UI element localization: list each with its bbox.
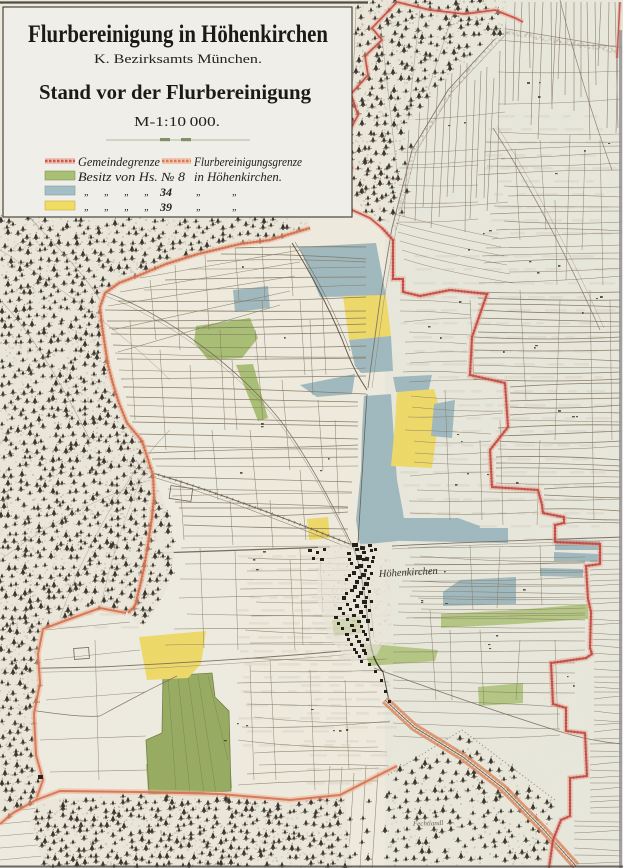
- svg-text:Gemeindegrenze: Gemeindegrenze: [78, 155, 160, 169]
- svg-text:34: 34: [159, 185, 172, 199]
- svg-text:M-1:10 000.: M-1:10 000.: [134, 115, 220, 130]
- svg-text:„ „ „ „: „ „ „ „: [84, 202, 156, 213]
- svg-text:„ „: „ „: [196, 202, 252, 213]
- svg-text:39: 39: [159, 200, 172, 214]
- svg-text:„ „: „ „: [196, 187, 252, 198]
- svg-text:K. Bezirksamts München.: K. Bezirksamts München.: [94, 51, 262, 66]
- svg-text:Besitz von Hs. № 8: Besitz von Hs. № 8: [78, 170, 186, 184]
- svg-text:„ „ „ „: „ „ „ „: [84, 187, 156, 198]
- svg-text:Stand vor der Flurbereinigung: Stand vor der Flurbereinigung: [39, 80, 311, 104]
- svg-text:Flurbereinigung in Höhenkirche: Flurbereinigung in Höhenkirchen: [28, 21, 328, 48]
- svg-text:in Höhenkirchen.: in Höhenkirchen.: [194, 170, 282, 184]
- svg-text:Flurbereinigungsgrenze: Flurbereinigungsgrenze: [193, 155, 302, 169]
